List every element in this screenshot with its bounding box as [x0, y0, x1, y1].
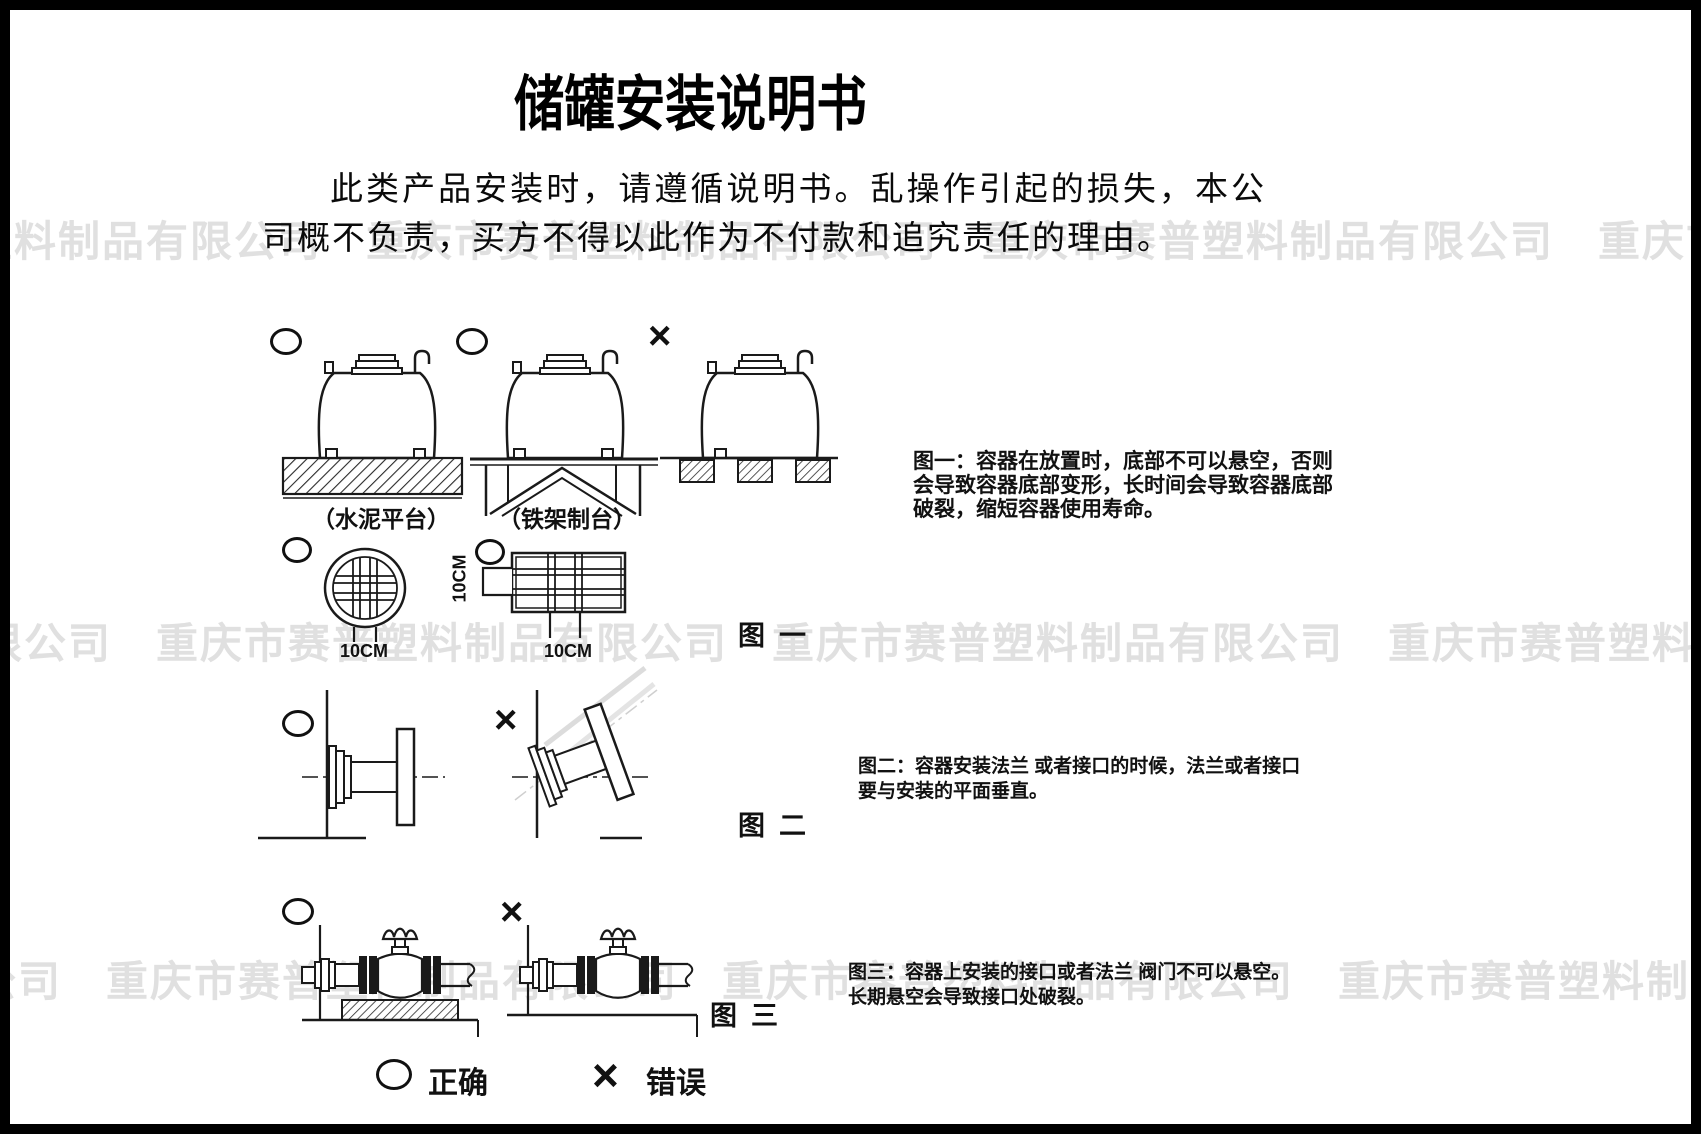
tank-on-blocks-wrong [660, 351, 838, 482]
correct-icon [282, 710, 314, 737]
figure1-caption-line: 会导致容器底部变形，长时间会导致容器底部 [913, 474, 1333, 498]
figure1-caption-line: 图一：容器在放置时，底部不可以悬空，否则 [913, 450, 1333, 474]
instruction-sheet: 重庆市赛普塑料制品有限公司 重庆市赛普塑料制品有限公司 重庆市赛普塑料制品有限公… [0, 0, 1701, 1134]
figure3-diagram [250, 880, 890, 1045]
rect-platform-top-view [483, 553, 625, 638]
dim-10cm-rect-side: 10CM [450, 559, 471, 603]
intro-paragraph: 此类产品安装时，请遵循说明书。乱操作引起的损失，本公司概不负责，买方不得以此作为… [262, 166, 1266, 264]
figure2-caption-line: 要与安装的平面垂直。 [858, 779, 1300, 804]
iron-frame-platform-label: （铁架制台） [498, 500, 636, 534]
figure1-caption: 图一：容器在放置时，底部不可以悬空，否则 会导致容器底部变形，长时间会导致容器底… [913, 450, 1333, 522]
legend-wrong-label: 错误 [646, 1058, 706, 1102]
wrong-icon: × [592, 1052, 619, 1098]
figure1-caption-line: 破裂，缩短容器使用寿命。 [913, 498, 1333, 522]
wrong-icon: × [500, 892, 523, 932]
figure2-caption-line: 图二：容器安装法兰 或者接口的时候，法兰或者接口 [858, 754, 1300, 779]
flange-correct [258, 690, 445, 838]
concrete-platform-label: （水泥平台） [312, 500, 450, 534]
wrong-icon: × [494, 700, 517, 740]
correct-icon [282, 537, 312, 563]
correct-icon [456, 328, 488, 355]
correct-icon [475, 539, 505, 565]
flange-wrong [512, 668, 657, 838]
valve-suspended-wrong [507, 925, 697, 1037]
correct-icon [270, 328, 302, 355]
figure3-caption: 图三：容器上安装的接口或者法兰 阀门不可以悬空。 长期悬空会导致接口处破裂。 [848, 960, 1290, 1010]
figure1-label: 图一 [738, 614, 820, 653]
legend-correct-label: 正确 [428, 1058, 488, 1102]
correct-icon [282, 898, 314, 925]
figure2-caption: 图二：容器安装法兰 或者接口的时候，法兰或者接口 要与安装的平面垂直。 [858, 754, 1300, 804]
tank-on-iron-frame [470, 351, 658, 516]
page-title: 储罐安装说明书 [514, 56, 867, 143]
figure3-caption-line: 图三：容器上安装的接口或者法兰 阀门不可以悬空。 [848, 960, 1290, 985]
figure2-label: 图二 [738, 804, 820, 843]
valve-supported-correct [302, 925, 478, 1037]
round-platform-top-view [325, 549, 405, 642]
figure3-caption-line: 长期悬空会导致接口处破裂。 [848, 985, 1290, 1010]
wrong-icon: × [648, 316, 671, 356]
correct-icon [376, 1059, 412, 1090]
figure3-label: 图三 [710, 994, 792, 1033]
tank-on-concrete [283, 351, 462, 498]
